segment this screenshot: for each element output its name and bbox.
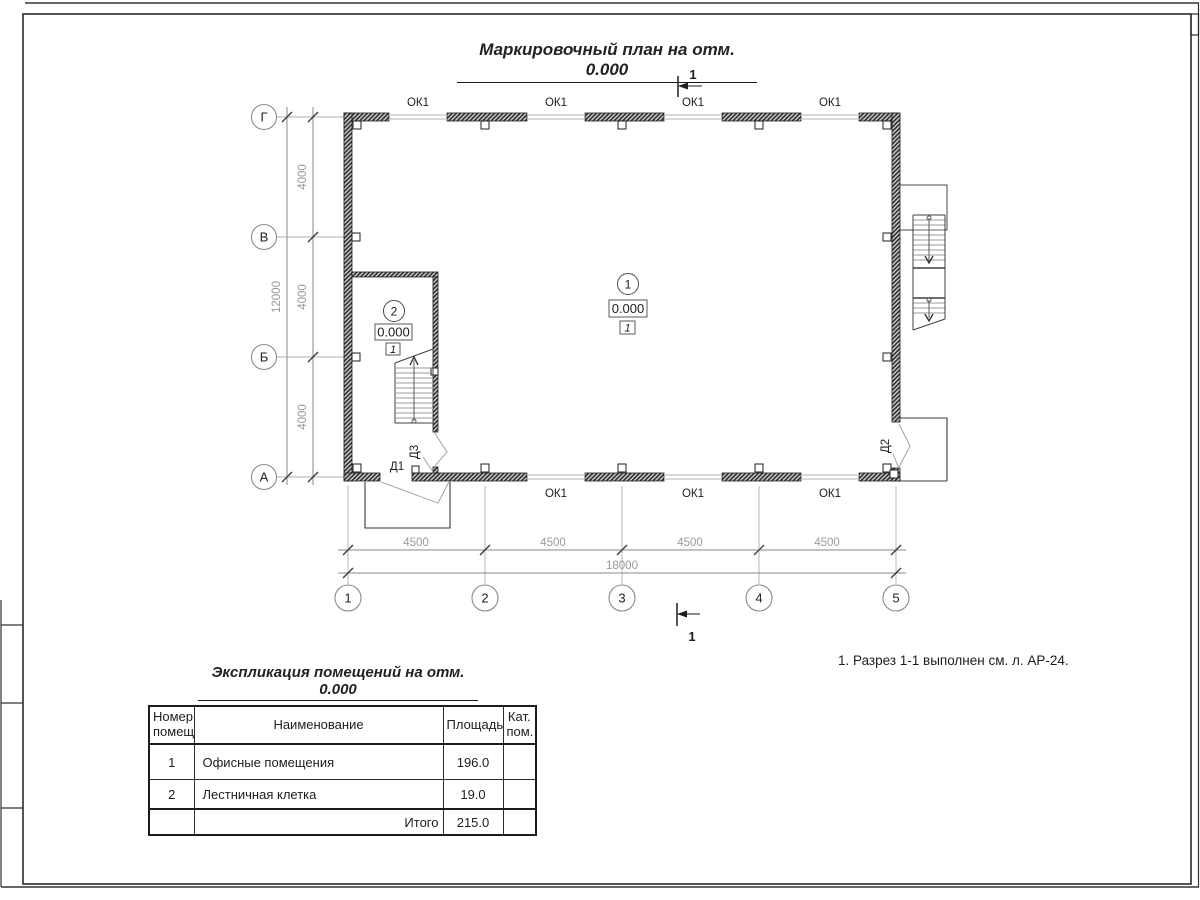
cell-empty bbox=[149, 809, 194, 835]
cell-number: 2 bbox=[149, 780, 194, 810]
window-label: ОК1 bbox=[682, 97, 704, 109]
stair-exterior bbox=[900, 185, 947, 330]
dim-total-value: 12000 bbox=[271, 281, 283, 313]
section-number-bottom: 1 bbox=[688, 629, 695, 644]
wall-top bbox=[447, 113, 527, 121]
axis-label: Б bbox=[260, 350, 269, 365]
wall-bottom bbox=[722, 473, 801, 481]
axis-label: 1 bbox=[344, 591, 351, 606]
column-mark bbox=[618, 121, 626, 129]
dim-value: 4500 bbox=[403, 537, 429, 549]
door-label-d1: Д1 bbox=[390, 461, 404, 473]
col-header-name: Наименование bbox=[194, 706, 443, 744]
elevation-value: 0.000 bbox=[377, 325, 410, 340]
column-mark bbox=[883, 121, 891, 129]
room-markers: 1 0.000 1 2 0.000 1 bbox=[375, 274, 647, 357]
drawing-title-text: Маркировочный план на отм. 0.000 bbox=[457, 40, 757, 83]
drawing-sheet: { "sheet": { "title": "Маркировочный пла… bbox=[0, 0, 1200, 900]
stair-platform bbox=[900, 185, 947, 230]
wall-bottom bbox=[344, 473, 380, 481]
elevation-value: 0.000 bbox=[612, 301, 645, 316]
windows bbox=[389, 115, 859, 479]
table-row: 1 Офисные помещения 196.0 bbox=[149, 744, 536, 780]
dim-value: 4000 bbox=[297, 284, 309, 310]
section-arrowhead-bottom bbox=[677, 611, 687, 618]
room-number: 2 bbox=[391, 305, 398, 319]
partition-stair-top bbox=[352, 272, 438, 277]
note-text: 1. Разрез 1-1 выполнен см. л. АР-24. bbox=[838, 653, 1069, 668]
explication-title: Экспликация помещений на отм. 0.000 bbox=[198, 664, 478, 701]
column-mark bbox=[352, 353, 360, 361]
finish-type-value: 1 bbox=[390, 344, 396, 356]
window-label: ОК1 bbox=[407, 97, 429, 109]
wall-bottom bbox=[585, 473, 664, 481]
total-label: Итого bbox=[194, 809, 443, 835]
dim-value: 4000 bbox=[297, 404, 309, 430]
frame-corner-box bbox=[1191, 14, 1199, 35]
porch-right bbox=[900, 418, 947, 481]
door-jamb-mark bbox=[412, 466, 419, 473]
window-label: ОК1 bbox=[819, 97, 841, 109]
stair-interior bbox=[395, 349, 433, 423]
column-mark bbox=[755, 464, 763, 472]
window-label: ОК1 bbox=[545, 488, 567, 500]
door-jamb-mark bbox=[890, 470, 898, 478]
table-row: 2 Лестничная клетка 19.0 bbox=[149, 780, 536, 810]
axis-label: 3 bbox=[618, 591, 625, 606]
window-labels: ОК1 ОК1 ОК1 ОК1 ОК1 ОК1 ОК1 bbox=[407, 97, 841, 500]
total-value: 215.0 bbox=[443, 809, 503, 835]
wall-top bbox=[722, 113, 801, 121]
column-mark bbox=[353, 121, 361, 129]
dim-value: 4000 bbox=[297, 164, 309, 190]
column-mark bbox=[883, 353, 891, 361]
door-swing-d3 bbox=[434, 432, 447, 467]
axis-label: А bbox=[260, 470, 269, 485]
cell-number: 1 bbox=[149, 744, 194, 780]
door-label-d3: Д3 bbox=[409, 445, 421, 459]
column-mark bbox=[352, 233, 360, 241]
dim-value: 4500 bbox=[677, 537, 703, 549]
col-header-number: Номер помещ. bbox=[149, 706, 194, 744]
col-header-category: Кат. пом. bbox=[503, 706, 536, 744]
partition-stair-right bbox=[433, 277, 438, 432]
explication-title-text: Экспликация помещений на отм. 0.000 bbox=[198, 664, 478, 701]
column-mark bbox=[481, 121, 489, 129]
dim-value: 4500 bbox=[814, 537, 840, 549]
axis-label: 4 bbox=[755, 591, 762, 606]
window-label: ОК1 bbox=[545, 97, 567, 109]
window-label: ОК1 bbox=[682, 488, 704, 500]
door-jamb-mark bbox=[431, 368, 438, 375]
door-swing-d2 bbox=[899, 424, 910, 467]
col-header-area: Площадь bbox=[443, 706, 503, 744]
cell-area: 19.0 bbox=[443, 780, 503, 810]
explication-table: Номер помещ. Наименование Площадь Кат. п… bbox=[148, 705, 537, 836]
door-leader-d3 bbox=[423, 457, 433, 472]
cell-empty bbox=[503, 809, 536, 835]
axis-label: 5 bbox=[892, 591, 899, 606]
dim-total-value: 18000 bbox=[606, 560, 638, 572]
cell-name: Офисные помещения bbox=[194, 744, 443, 780]
walls bbox=[344, 113, 900, 481]
wall-bottom bbox=[412, 473, 527, 481]
room-number: 1 bbox=[625, 278, 632, 292]
column-mark bbox=[618, 464, 626, 472]
cell-category bbox=[503, 780, 536, 810]
finish-type-value: 1 bbox=[624, 323, 630, 335]
drawing-title: Маркировочный план на отм. 0.000 bbox=[457, 40, 757, 83]
axis-label: В bbox=[260, 230, 269, 245]
section-arrowhead-top bbox=[678, 83, 688, 90]
cell-area: 196.0 bbox=[443, 744, 503, 780]
cell-category bbox=[503, 744, 536, 780]
axis-label: 2 bbox=[481, 591, 488, 606]
door-swing-d1 bbox=[381, 482, 449, 503]
dimensions-left: 4000 4000 4000 12000 bbox=[271, 107, 318, 485]
wall-left bbox=[344, 113, 352, 481]
section-marks: 1 1 bbox=[677, 67, 702, 644]
column-mark bbox=[353, 464, 361, 472]
table-total-row: Итого 215.0 bbox=[149, 809, 536, 835]
wall-right bbox=[892, 113, 900, 422]
door-label-d2: Д2 bbox=[880, 439, 892, 453]
column-mark bbox=[481, 464, 489, 472]
window-label: ОК1 bbox=[819, 488, 841, 500]
dim-value: 4500 bbox=[540, 537, 566, 549]
table-header-row: Номер помещ. Наименование Площадь Кат. п… bbox=[149, 706, 536, 744]
axis-label: Г bbox=[260, 110, 267, 125]
column-mark bbox=[883, 233, 891, 241]
column-mark bbox=[755, 121, 763, 129]
room-table: Номер помещ. Наименование Площадь Кат. п… bbox=[148, 705, 537, 836]
porch-left bbox=[365, 482, 450, 528]
cell-name: Лестничная клетка bbox=[194, 780, 443, 810]
partition-stair-pier bbox=[433, 467, 438, 473]
wall-top bbox=[585, 113, 664, 121]
